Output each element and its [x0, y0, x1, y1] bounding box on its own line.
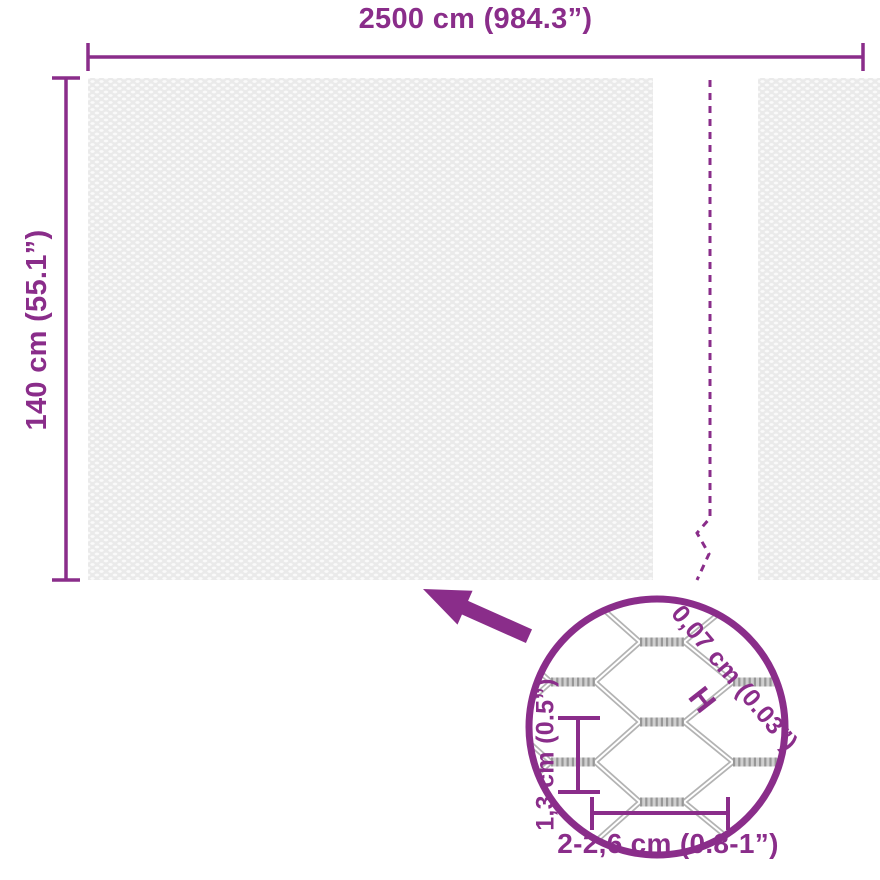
magnifier-arrow-icon: [415, 572, 536, 653]
width-dimension-label: 2500 cm (984.3”): [88, 3, 863, 36]
panel-break-dashed-line: [697, 80, 710, 580]
magnifier-circle: [529, 599, 785, 855]
height-dimension-line: [52, 78, 80, 580]
mesh-height-dimension-line: [558, 718, 600, 792]
width-dimension-line: [88, 43, 863, 71]
diagram-graphics: [0, 0, 880, 880]
height-dimension-label: 140 cm (55.1”): [20, 180, 54, 480]
mesh-width-label: 2-2,6 cm (0.8-1”): [508, 828, 828, 860]
product-dimension-diagram: 2500 cm (984.3”) 140 cm (55.1”) 0,07 cm …: [0, 0, 880, 880]
